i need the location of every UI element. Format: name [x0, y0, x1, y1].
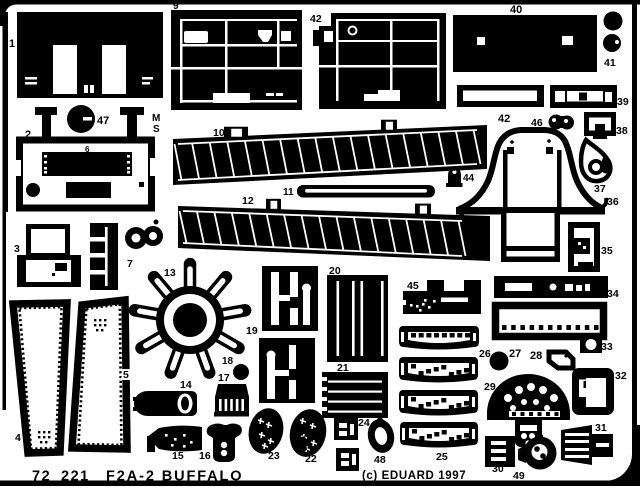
svg-text:32: 32	[615, 370, 627, 382]
svg-text:26: 26	[479, 348, 491, 360]
svg-text:17: 17	[218, 372, 230, 384]
svg-text:25: 25	[436, 451, 448, 463]
svg-text:13: 13	[164, 267, 176, 279]
svg-text:9: 9	[173, 1, 179, 12]
svg-text:(c) EDUARD 1997: (c) EDUARD 1997	[362, 470, 466, 482]
svg-text:42: 42	[310, 13, 322, 25]
svg-text:38: 38	[616, 125, 628, 137]
svg-text:48: 48	[374, 454, 386, 466]
svg-text:30: 30	[492, 463, 504, 475]
svg-text:5: 5	[123, 369, 129, 381]
svg-text:41: 41	[604, 57, 616, 69]
svg-text:35: 35	[601, 245, 613, 257]
svg-text:29: 29	[484, 381, 496, 393]
svg-text:3: 3	[14, 243, 20, 255]
svg-text:44: 44	[463, 173, 475, 184]
svg-text:45: 45	[407, 280, 419, 292]
svg-text:27: 27	[509, 348, 521, 360]
svg-text:31: 31	[595, 422, 607, 434]
svg-text:42: 42	[498, 113, 510, 125]
svg-text:16: 16	[199, 450, 211, 462]
svg-text:18: 18	[222, 356, 234, 367]
svg-text:40: 40	[510, 4, 522, 16]
svg-text:21: 21	[337, 362, 349, 374]
svg-text:7: 7	[127, 258, 133, 270]
svg-text:47: 47	[97, 115, 109, 127]
svg-text:22: 22	[305, 453, 317, 465]
svg-text:20: 20	[329, 265, 341, 277]
svg-text:19: 19	[246, 325, 258, 337]
svg-text:37: 37	[594, 183, 606, 195]
svg-text:1: 1	[9, 38, 15, 50]
svg-text:24: 24	[358, 417, 370, 429]
svg-text:33: 33	[601, 341, 613, 353]
svg-text:28: 28	[530, 350, 542, 362]
svg-text:12: 12	[242, 195, 254, 207]
svg-text:F2A-2 BUFFALO: F2A-2 BUFFALO	[106, 469, 243, 485]
svg-text:4: 4	[15, 432, 21, 444]
svg-text:11: 11	[283, 187, 294, 198]
svg-text:39: 39	[617, 96, 629, 108]
svg-text:36: 36	[607, 196, 619, 208]
svg-text:72: 72	[32, 469, 51, 485]
svg-text:M: M	[152, 113, 160, 124]
svg-text:2: 2	[25, 129, 31, 141]
svg-text:221: 221	[61, 469, 90, 485]
svg-text:10: 10	[213, 127, 225, 139]
svg-text:34: 34	[607, 288, 619, 300]
svg-text:6: 6	[85, 145, 90, 154]
svg-text:49: 49	[513, 470, 525, 482]
svg-text:S: S	[153, 124, 160, 135]
svg-text:14: 14	[180, 379, 192, 391]
svg-text:23: 23	[268, 450, 280, 462]
svg-text:15: 15	[172, 450, 184, 462]
